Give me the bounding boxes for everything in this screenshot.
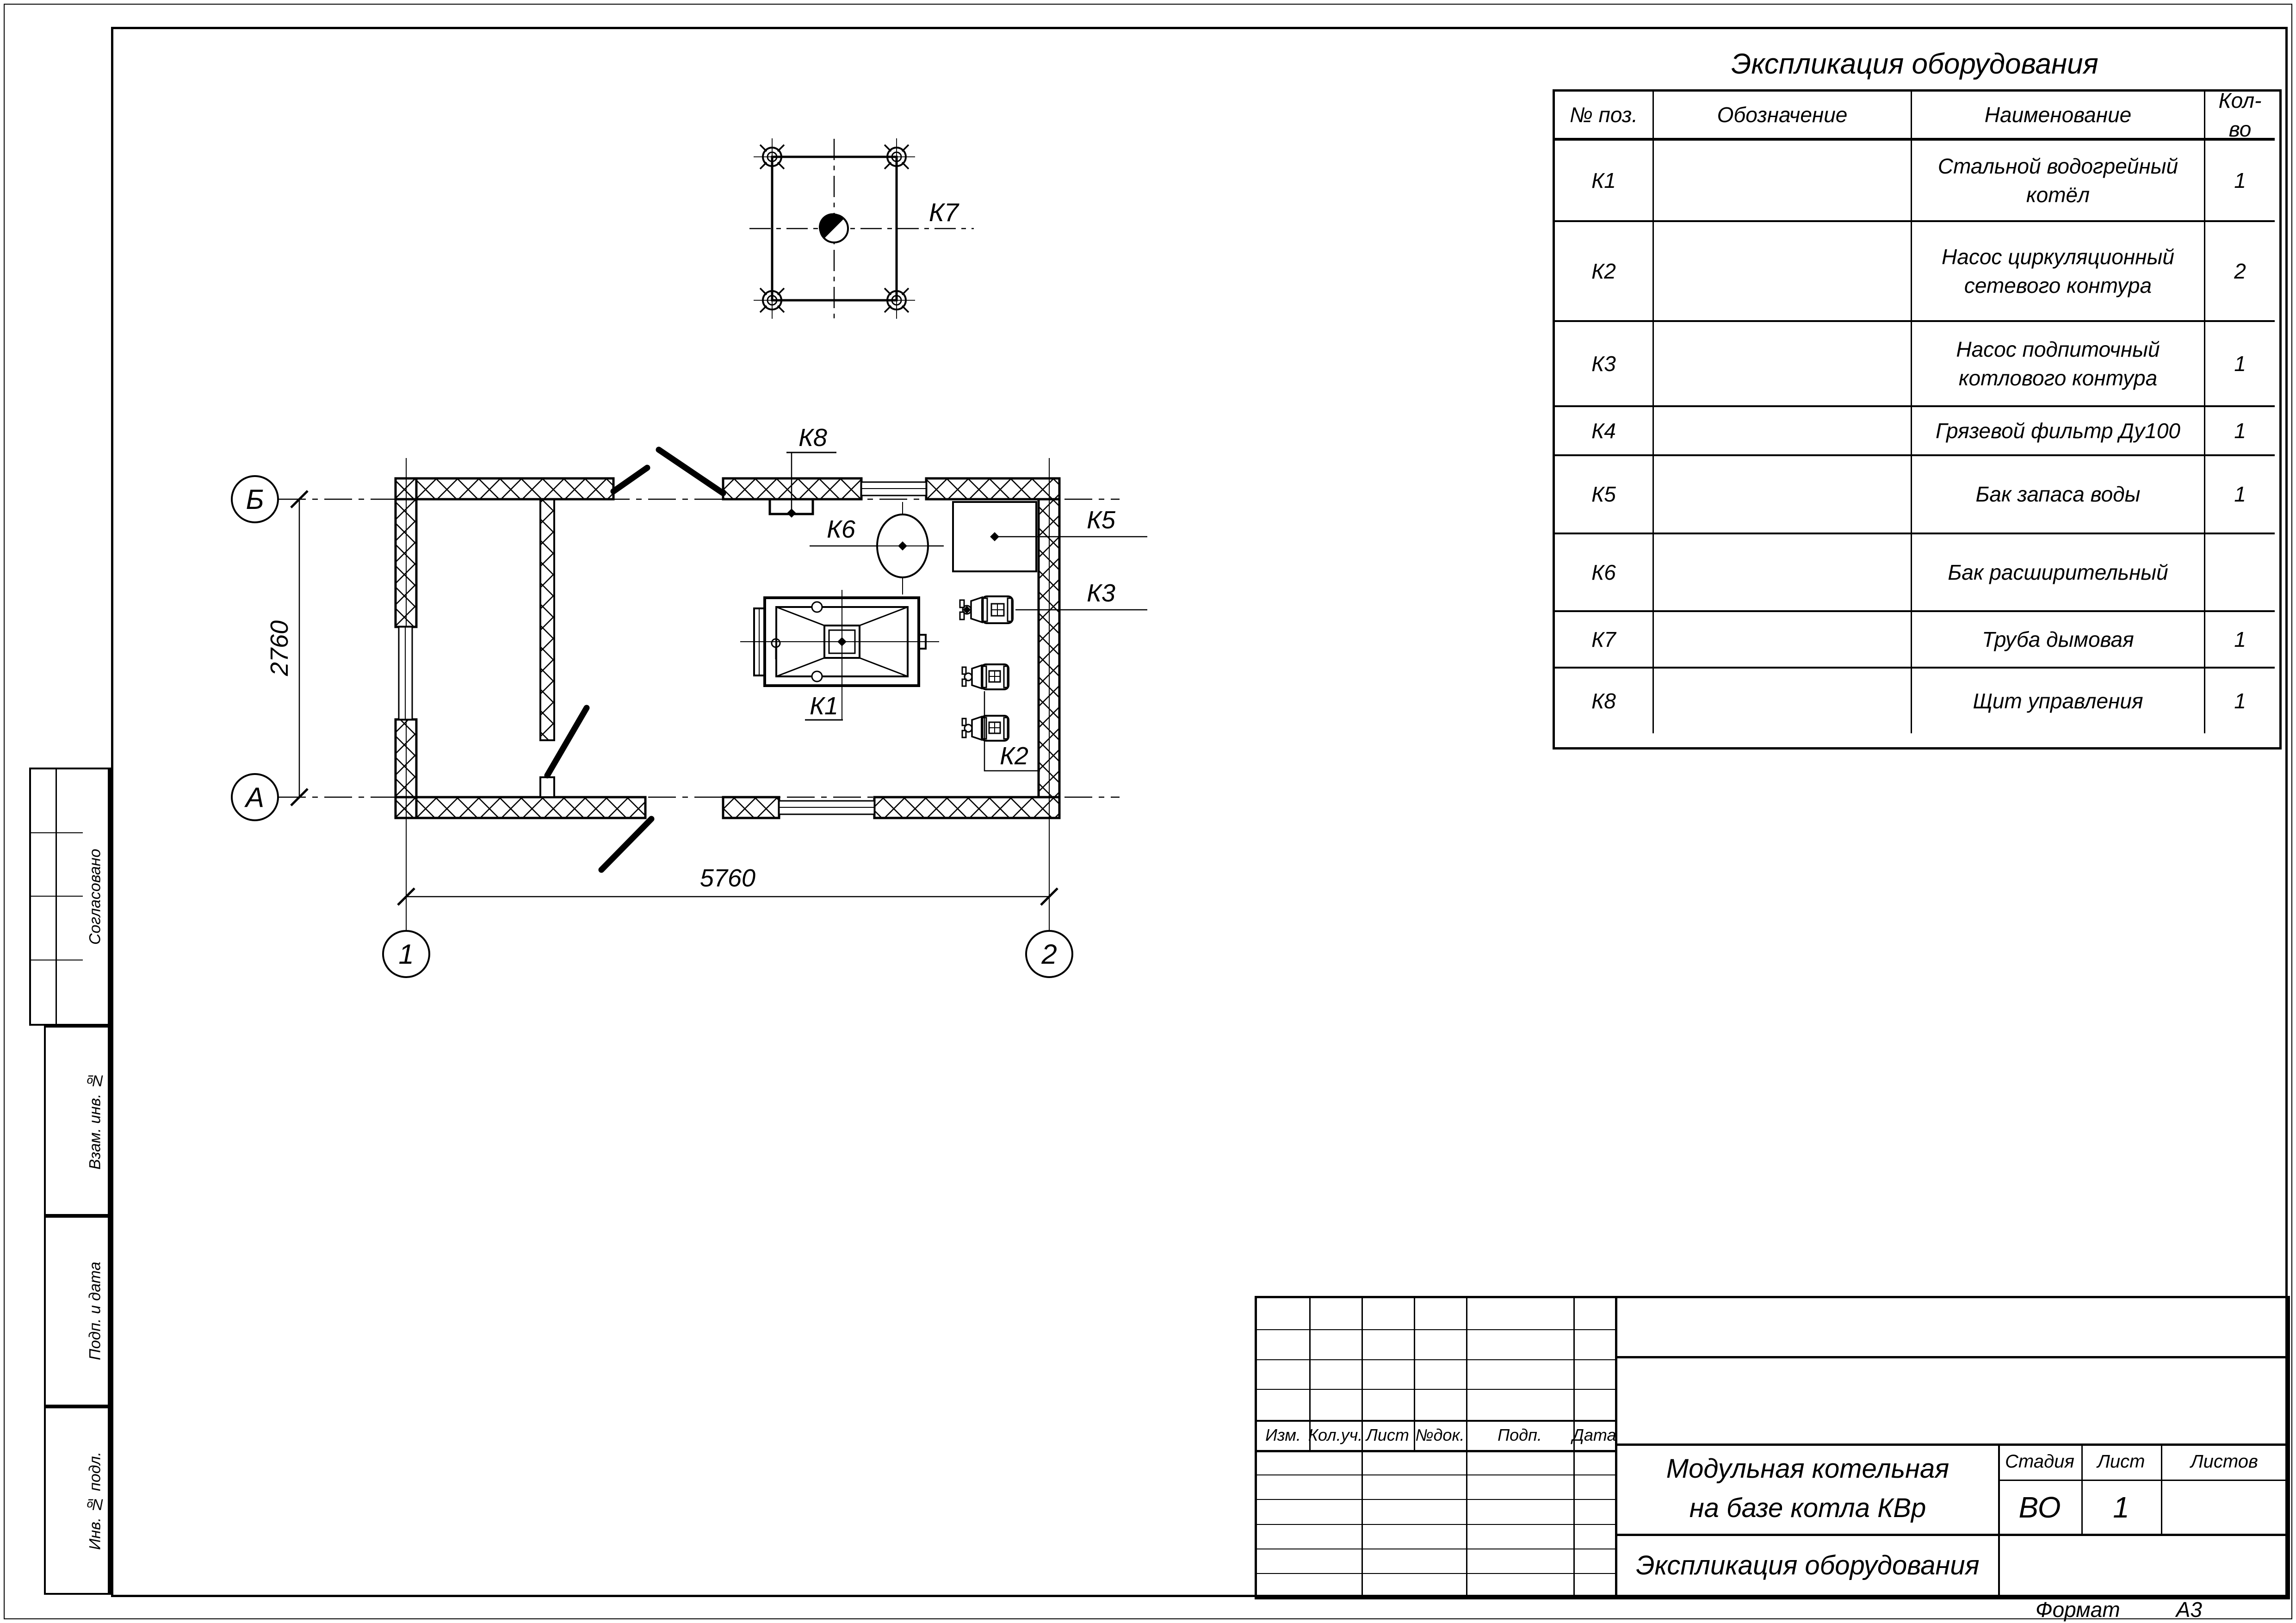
col-header-pos: № поз. [1555, 92, 1654, 141]
label-k7: К7 [929, 198, 959, 227]
col-header-qty: Кол-во [2205, 92, 2275, 141]
table-row-designation [1654, 534, 1912, 612]
replace-inv-label: Взам. инв. № [83, 1028, 109, 1214]
table-row-pos: К7 [1555, 612, 1654, 669]
table-row-qty: 1 [2205, 141, 2275, 222]
equipment-table-title: Экспликация оборудования [1553, 43, 2277, 85]
chimney-detail-k7: К7 [749, 138, 974, 322]
inv-orig-label: Инв. № подл. [83, 1408, 109, 1593]
rev-header-izm: Изм. [1257, 1420, 1309, 1450]
table-row-qty: 1 [2205, 612, 2275, 669]
axis-label-1: 1 [398, 939, 414, 970]
table-row-designation [1654, 612, 1912, 669]
format-label: Формат [2036, 1597, 2120, 1622]
table-row-designation [1654, 141, 1912, 222]
col-header-name: Наименование [1912, 92, 2205, 141]
table-row-qty: 1 [2205, 407, 2275, 456]
table-row-pos: К1 [1555, 141, 1654, 222]
table-row-name: Труба дымовая [1912, 612, 2205, 669]
table-row-qty: 1 [2205, 669, 2275, 733]
rev-header-list: Лист [1362, 1420, 1414, 1450]
label-k6: К6 [827, 515, 856, 543]
table-row-pos: К5 [1555, 456, 1654, 534]
axis-bubbles [232, 476, 1072, 977]
axis-label-a: А [244, 782, 264, 813]
rev-header-koluch: Кол.уч. [1309, 1420, 1362, 1450]
doc-title-line2: на базе котла КВр [1690, 1489, 1926, 1528]
doc-subtitle: Экспликация оборудования [1617, 1534, 1998, 1597]
sheets-value [2161, 1481, 2288, 1534]
table-row-name: Бак расширительный [1912, 534, 2205, 612]
table-row-qty: 1 [2205, 322, 2275, 407]
doc-title-line1: Модульная котельная [1666, 1450, 1949, 1488]
table-row-name: Бак запаса воды [1912, 456, 2205, 534]
stage-value: ВО [1998, 1481, 2081, 1534]
drawing-sheet: К7 [0, 0, 2296, 1623]
boiler-k1 [740, 590, 939, 720]
table-row-name: Щит управления [1912, 669, 2205, 733]
table-row-pos: К3 [1555, 322, 1654, 407]
flue-symbol-icon [819, 213, 848, 242]
side-strip-sign-date: Подп. и дата [44, 1216, 111, 1406]
table-row-designation [1654, 456, 1912, 534]
rev-header-ndok: №док. [1414, 1420, 1466, 1450]
rev-header-data: Дата [1573, 1420, 1615, 1450]
table-row-designation [1654, 322, 1912, 407]
table-row-name: Насос подпиточный котлового контура [1912, 322, 2205, 407]
dimension-2760 [291, 491, 308, 805]
format-value: А3 [2176, 1597, 2202, 1622]
format-note: Формат А3 [2036, 1597, 2230, 1622]
table-row-pos: К2 [1555, 222, 1654, 322]
sheet-value: 1 [2081, 1481, 2161, 1534]
stage-label: Стадия [1998, 1443, 2081, 1480]
doc-title: Модульная котельная на базе котла КВр [1617, 1443, 1998, 1534]
sign-date-label: Подп. и дата [83, 1218, 109, 1405]
sheets-label: Листов [2161, 1443, 2288, 1480]
approved-label: Согласовано [83, 769, 109, 1024]
dim-height-text: 2760 [266, 620, 293, 676]
side-strip-replace-inv: Взам. инв. № [44, 1026, 111, 1216]
table-row-qty: 2 [2205, 222, 2275, 322]
table-row-designation [1654, 407, 1912, 456]
table-row-name: Грязевой фильтр Ду100 [1912, 407, 2205, 456]
axis-label-2: 2 [1041, 939, 1057, 970]
table-row-name: Насос циркуляционный сетевого контура [1912, 222, 2205, 322]
equipment-table: № поз. Обозначение Наименование Кол-во К… [1553, 89, 2282, 750]
table-row-name: Стальной водогрейный котёл [1912, 141, 2205, 222]
sheet-label: Лист [2081, 1443, 2161, 1480]
side-strip-inv-orig: Инв. № подл. [44, 1406, 111, 1595]
table-row-pos: К4 [1555, 407, 1654, 456]
label-k1: К1 [810, 692, 838, 720]
label-k3: К3 [1087, 579, 1115, 607]
table-row-pos: К8 [1555, 669, 1654, 733]
table-row-designation [1654, 222, 1912, 322]
table-row-qty: 1 [2205, 456, 2275, 534]
label-k5: К5 [1087, 506, 1116, 534]
rev-header-podp: Подп. [1466, 1420, 1573, 1450]
label-k2: К2 [1000, 742, 1028, 770]
col-header-designation: Обозначение [1654, 92, 1912, 141]
side-strip-approved: Согласовано [29, 768, 111, 1026]
dim-width-text: 5760 [700, 864, 755, 892]
label-k8: К8 [798, 424, 827, 452]
table-row-designation [1654, 669, 1912, 733]
table-row-qty [2205, 534, 2275, 612]
axis-label-b: Б [246, 484, 264, 515]
table-row-pos: К6 [1555, 534, 1654, 612]
title-block: Изм. Кол.уч. Лист №док. Подп. Дата Модул… [1255, 1296, 2290, 1599]
